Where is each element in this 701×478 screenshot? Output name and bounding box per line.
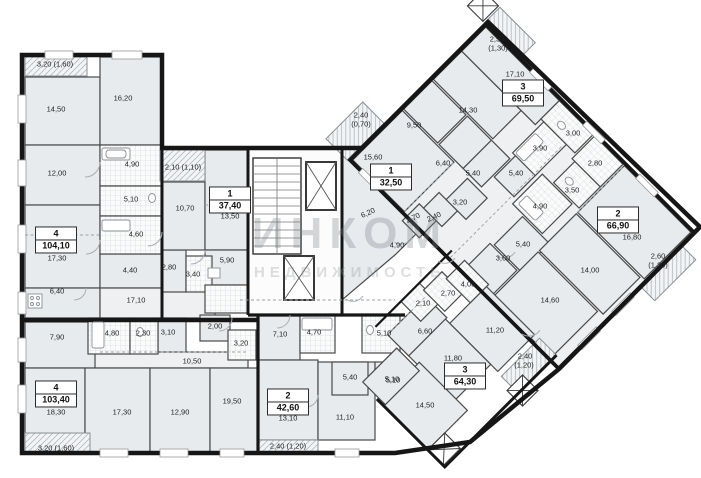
room-area-label: 5,10 [386,376,401,384]
apartment-living-area: 17,30 [48,254,67,262]
apartment-total-area: 64,30 [445,375,485,388]
room-area-label: 2,10 [416,299,431,307]
room-area-label: 16,80 [623,233,642,241]
room-area-label: 16,20 [114,94,133,102]
floor-plan-drawing [0,0,701,478]
apartment-badge: 4 104,10 [35,226,77,253]
room-area-label: 17,10 [506,70,525,78]
room-area-label: 14,50 [416,401,435,409]
room-area-label: 3,10 [161,328,176,336]
apartment-badge: 1 32,50 [370,163,412,190]
apartment-badge: 3 69,50 [502,79,544,106]
apartment-badge: 1 37,40 [209,186,251,213]
room-area-label: 3,60 [496,254,511,262]
room-area-label: 3,40 [186,270,201,278]
apartment-badge: 2 66,90 [597,206,639,233]
apartment-rooms-count: 3 [445,363,485,375]
room-area-label: 2,80 [162,263,177,271]
room-area-label: 6,40 [50,287,65,295]
room-area-label: 11,20 [486,326,504,334]
apartment-living-area: 18,30 [47,408,66,416]
room-area-label: (0,70) [351,120,371,128]
room-area-label: 9,50 [407,121,422,129]
apartment-rooms-count: 3 [503,80,543,92]
staircase [253,158,301,254]
apartment-badge: 2 42,60 [267,388,309,415]
apartment-rooms-count: 2 [598,207,638,219]
room-area-label: 17,30 [113,408,132,416]
room-area-label: 3,50 [565,186,580,194]
room-area-label: 14,50 [47,105,66,113]
room-area-label: 19,50 [223,397,242,405]
room-area-label: 4,40 [123,266,138,274]
room-area-label: 2,30 [136,329,151,337]
room-area-label: 12,90 [171,408,190,416]
apartment-rooms-count: 1 [210,187,250,199]
apartment-rooms-count: 2 [268,389,308,401]
room-area-label: (1,30) [648,261,668,269]
room-area-label: 17,10 [127,296,146,304]
room-area-label: 4,90 [533,202,548,210]
apartment-total-area: 42,60 [268,401,308,414]
room-area-label: 12,00 [48,169,67,177]
room-area-label: 6,60 [418,327,433,335]
room-area-label: 11,10 [336,413,354,421]
room-area-label: 2,10 (1,10) [165,163,201,171]
room-area-label: 3,20 [453,198,468,206]
room-area-label: (1,20) [514,361,534,369]
room-area-label: 3,00 [566,129,581,137]
apartment-total-area: 104,10 [36,239,76,252]
apartment-badge: 4 103,40 [35,380,77,407]
room-area-label: 10,70 [176,204,195,212]
room-area-label: 6,40 [436,159,451,167]
room-area-label: 2,00 [208,322,223,330]
room-area-label: 2,60 [651,252,666,260]
room-area-label: 7,10 [273,330,288,338]
room-area-label: 4,90 [125,160,140,168]
room-area-label: 2,40 [518,352,533,360]
room-area-label: 5,10 [377,329,392,337]
room-area-label: 5,40 [466,169,481,177]
room-area-label: (1,30) [488,44,508,52]
room-area-label: 4,00 [461,280,476,288]
apartment-total-area: 66,90 [598,219,638,232]
apartment-total-area: 37,40 [210,199,250,212]
room-area-label: 3,90 [533,144,548,152]
room-area-label: 3,20 (1,60) [37,60,73,68]
room-area-label: 5,90 [220,256,235,264]
room-area-label: 15,60 [364,153,383,161]
room-area-label: 4,70 [307,328,322,336]
apartment-total-area: 103,40 [36,393,76,406]
apartment-rooms-count: 4 [36,227,76,239]
apartment-badge: 3 64,30 [444,362,486,389]
room-area-label: 3,20 [234,339,249,347]
room-area-label: 4,90 [390,241,405,249]
room-area-label: 2,40 [354,111,369,119]
room-area-label: 4,80 [105,329,120,337]
room-area-label: 14,60 [541,296,560,304]
room-area-label: 5,40 [516,240,531,248]
room-area-label: 5,10 [124,195,139,203]
floor-plan: ИНКОМ НЕДВИЖИМОСТЬ 3,20 (1,60) 14,50 16,… [0,0,701,478]
room-area-label: 4,60 [129,230,144,238]
apartment-total-area: 32,50 [371,176,411,189]
room-area-label: 14,30 [459,106,478,114]
room-area-label: 3,20 (1,60) [38,444,74,452]
apartment-rooms-count: 4 [36,381,76,393]
room-area-label: 2,70 [441,289,456,297]
room-area-label: 7,90 [50,333,65,341]
room-area-label: 10,50 [183,357,202,365]
room-area-label: 5,40 [343,373,358,381]
apartment-rooms-count: 1 [371,164,411,176]
room-area-label: 2,40 (1,20) [270,442,306,450]
room-area-label: 2,80 [588,159,603,167]
room-area-label: 14,00 [581,266,600,274]
apartment-total-area: 69,50 [503,92,543,105]
room-area-label: 11,80 [444,354,462,362]
room-area-label: 2,50 [490,35,505,43]
room-area-label: 5,40 [509,169,524,177]
